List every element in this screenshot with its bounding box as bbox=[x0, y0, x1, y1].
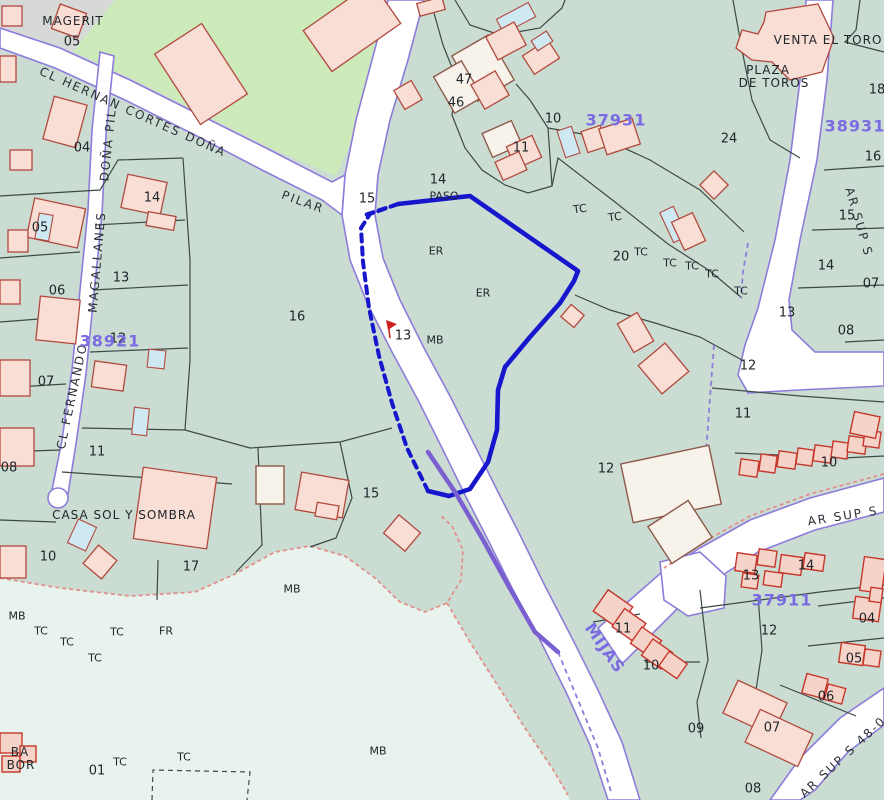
building bbox=[36, 296, 80, 344]
cul-de-sac bbox=[48, 488, 68, 508]
map-label-parcel: 07 bbox=[863, 277, 880, 292]
map-label-code: TC bbox=[59, 636, 74, 649]
building bbox=[0, 56, 16, 82]
building bbox=[91, 361, 126, 391]
map-label-code: ER bbox=[429, 245, 444, 258]
map-label-sheet: 37911 bbox=[752, 591, 813, 610]
map-label-parcel: 11 bbox=[735, 407, 752, 422]
map-label-parcel: 12 bbox=[761, 624, 778, 639]
building bbox=[777, 451, 797, 469]
map-label-parcel: 01 bbox=[89, 764, 106, 779]
map-label-parcel: 07 bbox=[38, 375, 55, 390]
map-label-code: TC bbox=[87, 652, 102, 665]
map-label-code: TC bbox=[662, 257, 677, 270]
map-label-sheet: 38921 bbox=[80, 332, 141, 351]
building bbox=[315, 502, 339, 520]
building bbox=[869, 587, 883, 603]
map-label-parcel: 10 bbox=[40, 550, 57, 565]
building bbox=[796, 448, 814, 466]
map-label-parcel: 04 bbox=[859, 612, 876, 627]
map-label-parcel: 05 bbox=[64, 35, 81, 50]
map-label-parcel: 11 bbox=[89, 445, 106, 460]
map-label-code: TC bbox=[633, 246, 648, 259]
cadastral-map-viewport: MAGERIT050414050613120708111017161515144… bbox=[0, 0, 884, 800]
building bbox=[10, 150, 32, 170]
map-label-parcel: 10 bbox=[821, 456, 838, 471]
map-label-parcel: 46 bbox=[448, 96, 465, 111]
map-label-parcel: 14 bbox=[144, 191, 161, 206]
building bbox=[2, 6, 22, 26]
map-label-code: ER bbox=[476, 287, 491, 300]
map-label-code: TC bbox=[33, 625, 48, 638]
map-label-name: DE TOROS bbox=[739, 76, 810, 90]
map-label-parcel: 11 bbox=[513, 141, 530, 156]
building bbox=[8, 230, 28, 252]
map-label-sheet: 38931 bbox=[825, 117, 884, 136]
map-label-parcel: 12 bbox=[740, 359, 757, 374]
map-label-parcel: 16 bbox=[289, 310, 306, 325]
map-label-code: TC bbox=[684, 260, 699, 273]
pool bbox=[147, 349, 166, 369]
map-label-parcel: 14 bbox=[818, 259, 835, 274]
map-label-parcel: 14 bbox=[798, 559, 815, 574]
building bbox=[0, 280, 20, 304]
building bbox=[850, 412, 880, 439]
map-label-parcel: 47 bbox=[456, 73, 473, 88]
map-label-name: BA bbox=[11, 745, 29, 759]
map-label-parcel: 04 bbox=[74, 141, 91, 156]
building bbox=[0, 360, 30, 396]
map-label-parcel: 18 bbox=[869, 83, 884, 98]
map-label-parcel: 10 bbox=[643, 659, 660, 674]
map-label-name: BOR bbox=[7, 758, 36, 772]
map-label-code: MB bbox=[8, 610, 25, 623]
map-label-parcel: 15 bbox=[363, 487, 380, 502]
pool bbox=[132, 407, 150, 435]
map-label-name: PLAZA bbox=[746, 63, 790, 77]
map-label-parcel: 06 bbox=[49, 284, 66, 299]
map-label-parcel: 24 bbox=[721, 132, 738, 147]
map-label-parcel: 08 bbox=[745, 782, 762, 797]
map-label-code: TC bbox=[704, 268, 719, 281]
map-label-sheet: 37931 bbox=[586, 111, 647, 130]
map-label-parcel: 08 bbox=[838, 324, 855, 339]
map-label-parcel: 09 bbox=[688, 722, 705, 737]
map-label-parcel: 05 bbox=[846, 652, 863, 667]
building bbox=[757, 549, 777, 567]
map-label-parcel: 14 bbox=[430, 173, 447, 188]
map-label-code: PASO bbox=[429, 190, 458, 203]
map-label-name: MAGERIT bbox=[42, 14, 103, 28]
map-label-parcel: 13 bbox=[113, 271, 130, 286]
map-label-parcel: 13 bbox=[743, 569, 760, 584]
map-label-code: FR bbox=[159, 625, 173, 638]
building bbox=[256, 466, 284, 504]
map-label-parcel: 15 bbox=[359, 192, 376, 207]
building bbox=[759, 454, 777, 473]
map-label-parcel: 12 bbox=[598, 462, 615, 477]
map-label-code: TC bbox=[606, 210, 623, 225]
cadastral-map: MAGERIT050414050613120708111017161515144… bbox=[0, 0, 884, 800]
map-label-code: TC bbox=[733, 285, 748, 298]
map-label-code: TC bbox=[176, 751, 191, 764]
map-label-parcel: 17 bbox=[183, 560, 200, 575]
building bbox=[739, 459, 759, 477]
map-label-name: VENTA EL TORO bbox=[774, 33, 883, 47]
map-label-code: MB bbox=[283, 583, 300, 596]
map-label-code: MB bbox=[426, 334, 443, 347]
map-label-parcel: 16 bbox=[865, 150, 882, 165]
map-label-parcel: 10 bbox=[545, 112, 562, 127]
building bbox=[763, 571, 783, 587]
map-label-code: MB bbox=[369, 745, 386, 758]
map-label-parcel: 07 bbox=[764, 721, 781, 736]
map-label-parcel: 13 bbox=[779, 306, 796, 321]
map-label-parcel: 05 bbox=[32, 221, 49, 236]
map-label-code: TC bbox=[109, 626, 124, 639]
map-label-parcel: 11 bbox=[615, 622, 632, 637]
building bbox=[0, 546, 26, 578]
map-label-parcel: 20 bbox=[613, 250, 630, 265]
map-label-parcel: 06 bbox=[818, 690, 835, 705]
map-label-code: TC bbox=[112, 756, 127, 769]
map-label-parcel: 13 bbox=[395, 329, 412, 344]
building bbox=[863, 649, 881, 667]
map-label-parcel: 08 bbox=[1, 461, 18, 476]
map-label-code: TC bbox=[571, 202, 588, 217]
map-label-name: CASA SOL Y SOMBRA bbox=[52, 508, 196, 522]
